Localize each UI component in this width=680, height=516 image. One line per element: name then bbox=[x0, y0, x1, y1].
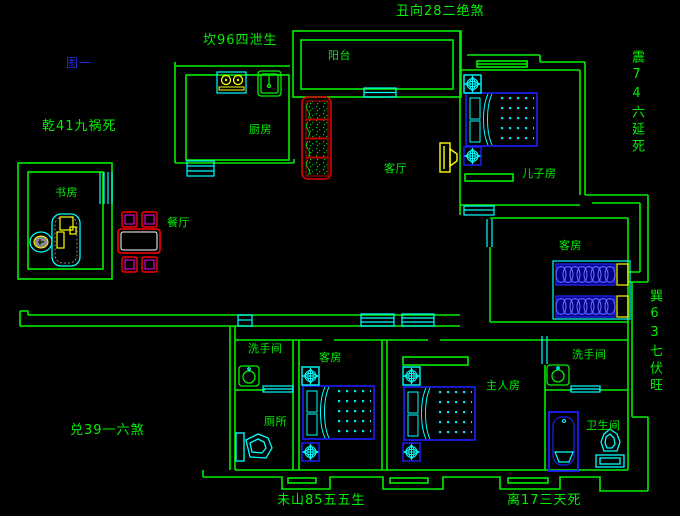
dining-set bbox=[118, 212, 160, 272]
study-desk bbox=[52, 214, 80, 266]
nightstand-lamp-icon bbox=[403, 443, 420, 461]
floorplan-canvas[interactable]: 丑向28二绝煞 坎96四泄生 图一 乾41九祸死 震74六延死 巽63七伏旺 兑… bbox=[0, 0, 680, 516]
washroom-left-door bbox=[263, 386, 293, 392]
washbasin-right bbox=[547, 365, 569, 385]
window-small bbox=[238, 315, 252, 326]
son-room-window bbox=[464, 206, 494, 215]
toilet-wc bbox=[236, 433, 272, 461]
room-label-guest-lower: 客房 bbox=[319, 351, 342, 364]
annotation-qian: 乾41九祸死 bbox=[42, 119, 117, 135]
room-label-toilet: 厕所 bbox=[264, 415, 287, 428]
annotation-li: 离17三天死 bbox=[507, 493, 582, 509]
toilet-bathroom bbox=[596, 429, 624, 467]
room-label-washroom-right: 洗手间 bbox=[572, 348, 607, 361]
floorplan-drawing bbox=[0, 0, 680, 516]
room-label-dining: 餐厅 bbox=[167, 216, 190, 229]
nightstand-lamp-icon bbox=[464, 75, 481, 93]
tv-cabinet bbox=[440, 143, 457, 172]
figure-caption: 图一 bbox=[66, 56, 92, 70]
guest-room-door bbox=[487, 219, 492, 247]
annotation-dui: 兑39一六煞 bbox=[70, 423, 145, 439]
nightstand-lamp-icon bbox=[464, 147, 481, 165]
nightstand-lamp-icon bbox=[302, 443, 319, 461]
room-label-bathroom: 卫生间 bbox=[586, 419, 621, 432]
study-door-hatch bbox=[100, 172, 112, 204]
room-label-master: 主人房 bbox=[486, 379, 521, 392]
room-label-kitchen: 厨房 bbox=[249, 123, 272, 136]
room-label-son-room: 儿子房 bbox=[522, 167, 557, 180]
washroom-right-window bbox=[571, 386, 600, 392]
room-label-washroom-left: 洗手间 bbox=[248, 342, 283, 355]
room-label-living: 客厅 bbox=[384, 162, 407, 175]
master-bed bbox=[404, 387, 475, 440]
annotation-chou: 丑向28二绝煞 bbox=[396, 4, 485, 20]
room-label-guest-upper: 客房 bbox=[559, 239, 582, 252]
annotation-xun: 巽63七伏旺 bbox=[648, 289, 661, 395]
sofa bbox=[302, 97, 331, 179]
nightstand-lamp-icon bbox=[403, 367, 420, 385]
washbasin-left bbox=[239, 366, 259, 386]
nightstand-lamp-icon bbox=[302, 367, 319, 385]
guest-upper-beds bbox=[553, 261, 630, 319]
guest-lower-bed bbox=[303, 386, 374, 439]
annotation-wei: 未山85五五生 bbox=[277, 493, 366, 509]
room-label-balcony: 阳台 bbox=[328, 49, 351, 62]
study-chair bbox=[30, 232, 52, 252]
son-bed bbox=[466, 93, 537, 146]
room-label-study: 书房 bbox=[55, 186, 78, 199]
annotation-kan: 坎96四泄生 bbox=[203, 33, 278, 49]
bathtub bbox=[549, 412, 578, 471]
annotation-zhen: 震74六延死 bbox=[630, 50, 643, 156]
